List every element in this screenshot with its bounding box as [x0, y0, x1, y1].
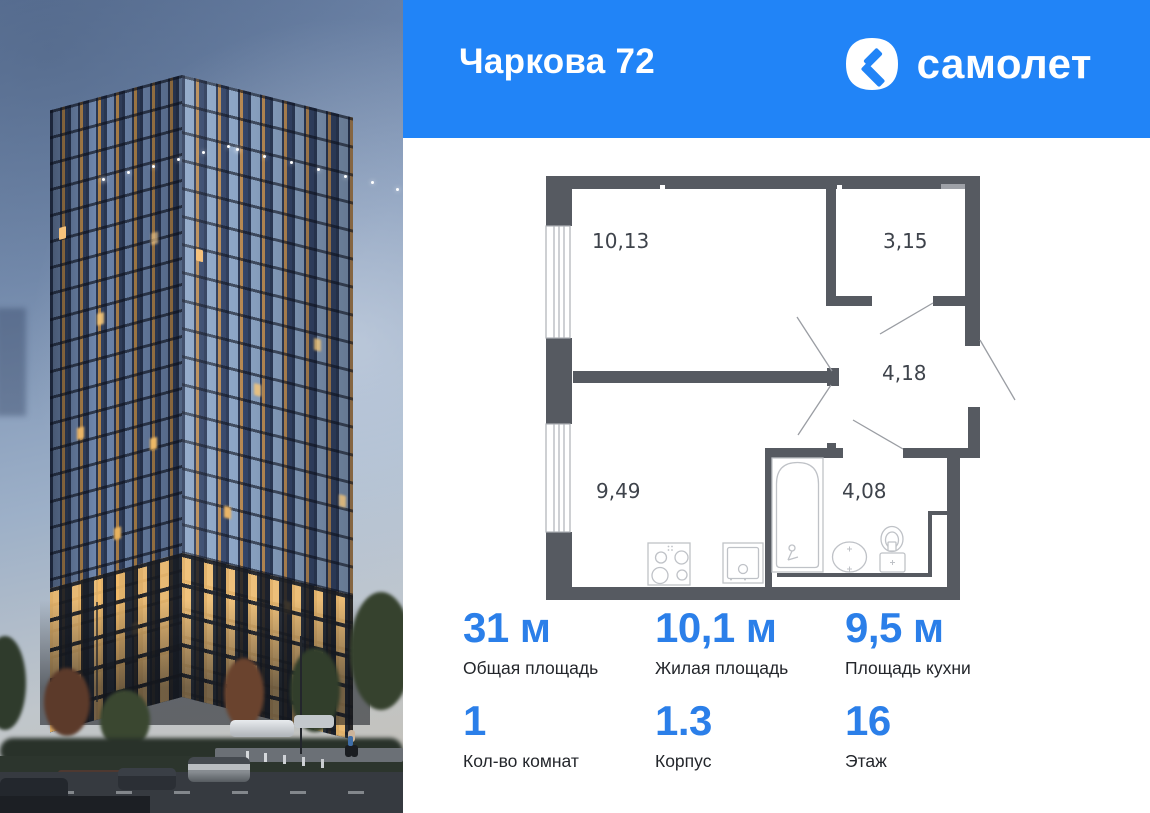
stat-label: Корпус: [655, 751, 845, 772]
lit-windows: [59, 226, 66, 240]
stat-floor: 16 Этаж: [845, 699, 1045, 792]
fence: [0, 796, 150, 813]
roofline-lights: [236, 148, 239, 151]
room-area-living: 10,13: [592, 229, 649, 253]
washbasin-icon: [833, 542, 867, 572]
stat-building: 1.3 Корпус: [655, 699, 845, 792]
brand-name: самолет: [917, 36, 1092, 92]
stat-total-area: 31 м Общая площадь: [463, 606, 655, 699]
building-photo: [0, 0, 403, 813]
parked-car: [230, 720, 294, 737]
toilet-icon: [880, 527, 905, 573]
street-lamp: [96, 602, 98, 702]
distant-building-silhouette: [0, 308, 26, 416]
stat-label: Этаж: [845, 751, 1045, 772]
stat-value: 1.3: [655, 699, 845, 743]
window: [546, 424, 570, 532]
stat-value: 9,5 м: [845, 606, 1045, 650]
red-tree: [224, 658, 264, 728]
room-area-kitchen: 9,49: [596, 479, 641, 503]
listing-details: Чаркова 72 самолет: [403, 0, 1150, 813]
roofline-lights: [102, 178, 105, 181]
lit-windows: [196, 248, 203, 262]
cyclist: [348, 736, 353, 746]
stat-living-area: 10,1 м Жилая площадь: [655, 606, 845, 699]
suv-car: [188, 757, 250, 782]
room-area-bath: 4,08: [842, 479, 887, 503]
tree: [350, 592, 403, 710]
sedan-car: [118, 768, 176, 790]
stat-label: Жилая площадь: [655, 658, 845, 679]
stat-value: 31 м: [463, 606, 655, 650]
stat-value: 16: [845, 699, 1045, 743]
stat-label: Площадь кухни: [845, 658, 1045, 679]
apartment-stats: 31 м Общая площадь 10,1 м Жилая площадь …: [463, 606, 1045, 792]
window: [546, 226, 570, 338]
wall-joint: [660, 185, 665, 189]
header-bar: Чаркова 72 самолет: [403, 0, 1150, 138]
bathtub-icon: [772, 458, 823, 572]
stat-rooms: 1 Кол-во комнат: [463, 699, 655, 792]
project-title: Чаркова 72: [459, 42, 655, 82]
street-lamp: [300, 636, 302, 754]
samolet-logo[interactable]: самолет: [844, 36, 1092, 92]
stat-kitchen-area: 9,5 м Площадь кухни: [845, 606, 1045, 699]
room-area-storage: 3,15: [883, 229, 928, 253]
stat-value: 1: [463, 699, 655, 743]
listing-card: Чаркова 72 самолет: [0, 0, 1150, 813]
stat-label: Общая площадь: [463, 658, 655, 679]
parked-car: [294, 715, 334, 728]
floor-plan: 10,13 3,15 4,18 9,49 4,08: [540, 168, 1020, 613]
red-tree: [44, 668, 90, 736]
wall-joint: [837, 185, 842, 189]
kitchen-sink-icon: [723, 543, 763, 583]
stat-value: 10,1 м: [655, 606, 845, 650]
stove-icon: [648, 543, 690, 585]
stat-label: Кол-во комнат: [463, 751, 655, 772]
samolet-arrow-icon: [844, 36, 900, 92]
wall-recess: [941, 184, 965, 189]
room-area-hall: 4,18: [882, 361, 927, 385]
